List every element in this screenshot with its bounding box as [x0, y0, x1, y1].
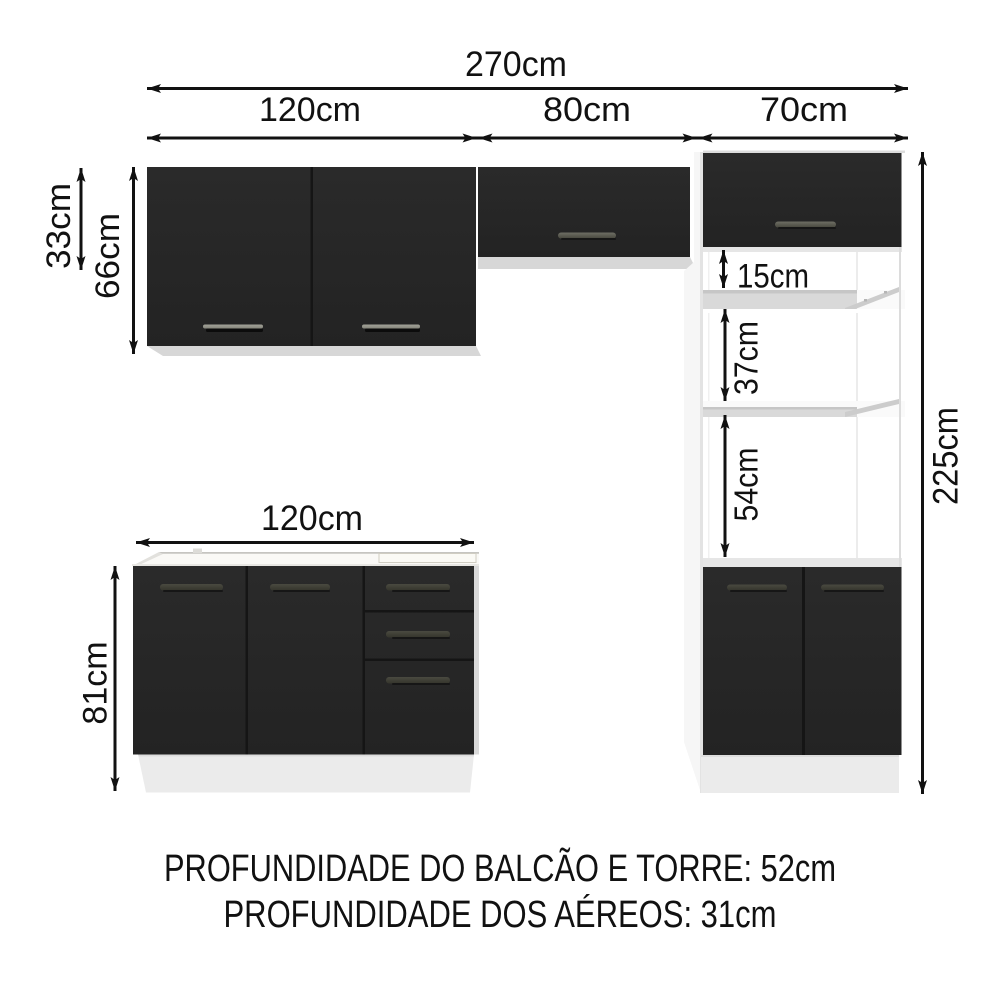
- svg-text:37cm: 37cm: [728, 321, 765, 395]
- svg-text:80cm: 80cm: [543, 91, 631, 129]
- svg-text:33cm: 33cm: [40, 183, 78, 269]
- svg-text:54cm: 54cm: [728, 448, 765, 522]
- svg-text:PROFUNDIDADE DO BALCÃO E TORRE: PROFUNDIDADE DO BALCÃO E TORRE: 52cm: [164, 847, 836, 890]
- svg-text:225cm: 225cm: [927, 407, 966, 505]
- svg-text:70cm: 70cm: [760, 91, 848, 129]
- svg-text:270cm: 270cm: [465, 45, 567, 84]
- svg-text:120cm: 120cm: [259, 91, 361, 129]
- svg-text:66cm: 66cm: [89, 213, 127, 299]
- svg-text:81cm: 81cm: [77, 641, 115, 724]
- svg-text:PROFUNDIDADE DOS AÉREOS: 31cm: PROFUNDIDADE DOS AÉREOS: 31cm: [224, 893, 777, 936]
- svg-text:15cm: 15cm: [737, 258, 809, 296]
- svg-text:120cm: 120cm: [261, 499, 363, 538]
